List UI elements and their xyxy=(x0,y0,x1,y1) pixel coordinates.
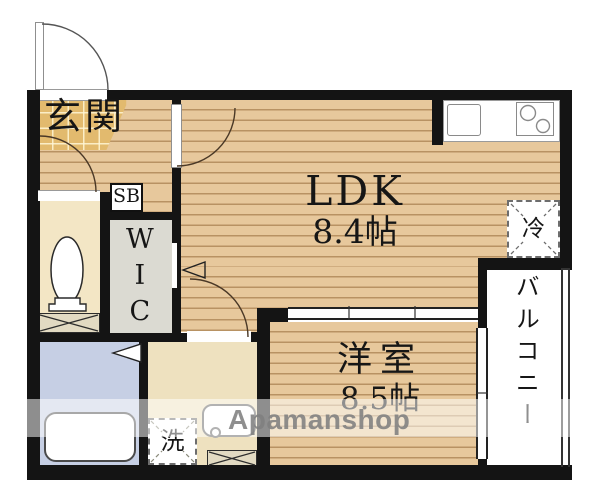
toilet-fixture xyxy=(51,237,83,303)
wic-label: WIC xyxy=(125,224,153,334)
shoe-box-label: SB xyxy=(110,183,143,212)
floorplan-canvas: 玄関 LDK 8.4帖 洋室 8.5帖 WIC バルコニー SB 冷 洗 Apa… xyxy=(0,0,600,480)
hall-ldk-door-arc xyxy=(177,108,235,166)
washroom-door-arc xyxy=(190,279,248,337)
watermark-logo-tail xyxy=(210,427,221,438)
storage-cross-lines xyxy=(40,315,98,331)
refrigerator-label: 冷 xyxy=(507,200,560,258)
front-door-arc xyxy=(42,24,108,90)
bath-folding-door-icon xyxy=(113,344,141,362)
ldk-label: LDK xyxy=(275,170,435,213)
toilet-base xyxy=(49,298,86,311)
stove-burner-1 xyxy=(521,106,536,121)
western-room-label: 洋室 xyxy=(295,342,465,379)
entrance-label: 玄関 xyxy=(44,98,126,137)
ldk-size-label: 8.4帖 xyxy=(275,215,435,250)
toilet-door-arc xyxy=(40,136,96,192)
balcony-label: バルコニー xyxy=(512,274,537,466)
watermark-text: Apamanshop xyxy=(228,404,410,436)
wic-folding-door-icon xyxy=(183,262,205,278)
ldk-label-block: LDK 8.4帖 xyxy=(275,170,435,250)
stove-burner-2 xyxy=(537,120,550,133)
vanity-cross-lines xyxy=(209,452,255,465)
